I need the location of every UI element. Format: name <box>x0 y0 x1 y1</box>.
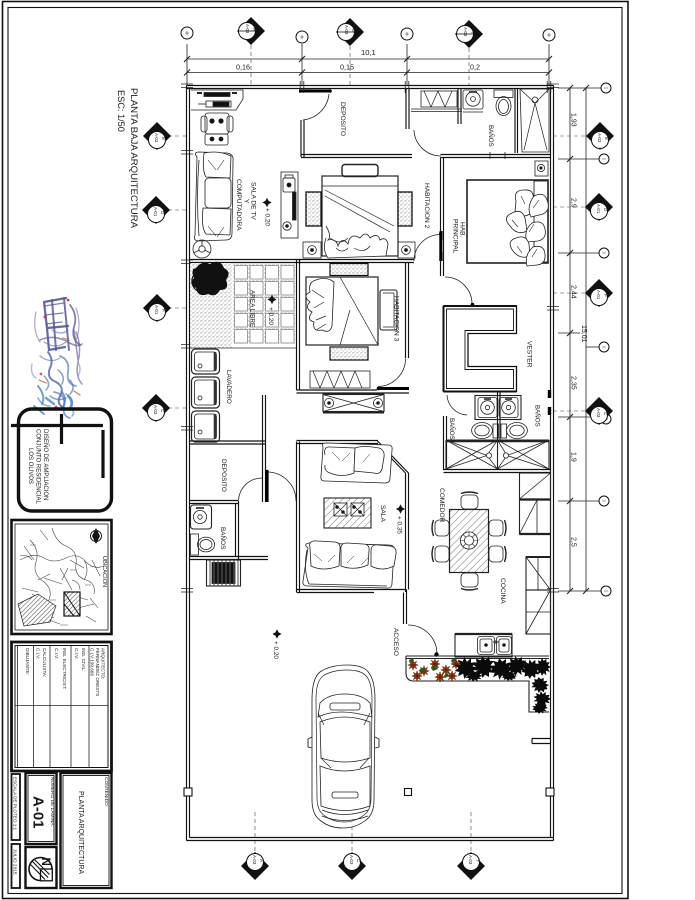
svg-text:A-03: A-03 <box>154 133 159 143</box>
svg-text:F: F <box>603 294 608 297</box>
svg-text:AREA LIBRE: AREA LIBRE <box>249 290 256 327</box>
svg-text:ARQUITECTO:: ARQUITECTO: <box>101 648 106 679</box>
svg-text:ESCALA DE PLOTEO 1:1: ESCALA DE PLOTEO 1:1 <box>13 777 18 831</box>
svg-text:C.I.V:: C.I.V: <box>36 648 41 659</box>
svg-text:ING. CIVIL:: ING. CIVIL: <box>81 648 86 672</box>
svg-text:N: N <box>39 858 51 866</box>
svg-text:15,01: 15,01 <box>580 325 587 343</box>
svg-text:1,9: 1,9 <box>570 452 577 462</box>
svg-text:T: T <box>475 859 480 862</box>
svg-text:ACCESO: ACCESO <box>392 628 399 656</box>
svg-text:0,2: 0,2 <box>470 63 480 72</box>
svg-text:PRINCIPAL: PRINCIPAL <box>452 219 459 254</box>
svg-text:CONJUNTO RESIDENCIAL: CONJUNTO RESIDENCIAL <box>35 429 41 505</box>
svg-text:ING. ELECTRICIST:: ING. ELECTRICIST: <box>62 648 67 689</box>
svg-text:+ 0,20: + 0,20 <box>272 641 279 659</box>
svg-text:VESTER: VESTER <box>526 341 533 368</box>
svg-text:A-03: A-03 <box>245 24 250 34</box>
svg-text:A-03: A-03 <box>252 855 257 865</box>
svg-text:BAÑOS: BAÑOS <box>448 418 455 440</box>
svg-text:LAVADERO: LAVADERO <box>225 370 232 404</box>
svg-text:DISEÑO DE AMPLIACION: DISEÑO DE AMPLIACION <box>42 429 49 500</box>
svg-text:A-03: A-03 <box>463 27 468 37</box>
svg-text:A-01: A-01 <box>153 207 158 217</box>
svg-text:DEPOSITO: DEPOSITO <box>339 102 346 136</box>
svg-text:+ 0,35: + 0,35 <box>396 516 403 534</box>
svg-text:C.I.V:: C.I.V: <box>54 648 59 659</box>
svg-text:BAÑOS: BAÑOS <box>487 125 494 147</box>
svg-text:LOS OLIVOS: LOS OLIVOS <box>27 448 33 484</box>
svg-text:COCINA: COCINA <box>499 578 506 604</box>
svg-text:ESC: 1/50: ESC: 1/50 <box>116 90 126 132</box>
svg-text:NUMERO DE LAMINA:: NUMERO DE LAMINA: <box>49 777 55 827</box>
svg-text:SALA: SALA <box>379 505 386 522</box>
svg-text:Y: Y <box>243 199 250 204</box>
svg-text:HABITACION 2: HABITACION 2 <box>423 183 430 229</box>
svg-text:A-03: A-03 <box>153 405 158 415</box>
svg-text:A-03: A-03 <box>468 855 473 865</box>
svg-text:C.I.V:: C.I.V: <box>74 648 79 659</box>
svg-text:2,5: 2,5 <box>570 537 577 547</box>
svg-text:E: E <box>161 137 166 140</box>
svg-text:E: E <box>604 137 609 140</box>
svg-text:FERNANDEZ ORESTS: FERNANDEZ ORESTS <box>95 648 100 696</box>
svg-text:DIBUJANTE:: DIBUJANTE: <box>25 648 30 675</box>
svg-text:C.I.V:199,666: C.I.V:199,666 <box>90 648 95 676</box>
svg-text:A-01: A-01 <box>596 204 601 214</box>
svg-text:0,16: 0,16 <box>236 63 250 72</box>
svg-text:A-03: A-03 <box>344 25 349 35</box>
svg-text:COMEDOR: COMEDOR <box>438 488 445 523</box>
svg-text:10,1: 10,1 <box>361 48 376 57</box>
svg-text:A-03: A-03 <box>596 408 601 418</box>
svg-text:SALA DE TV: SALA DE TV <box>250 182 257 220</box>
svg-text:JULIO 2015: JULIO 2015 <box>12 849 18 875</box>
svg-text:2,9: 2,9 <box>570 198 577 208</box>
svg-text:PLANTA BAJA ARQUITECTURA: PLANTA BAJA ARQUITECTURA <box>128 88 139 229</box>
svg-text:BAÑOS: BAÑOS <box>219 527 228 549</box>
svg-text:HABITACION 3: HABITACION 3 <box>393 296 400 342</box>
svg-text:A-01: A-01 <box>154 305 159 315</box>
svg-text:T: T <box>470 31 475 34</box>
svg-text:2,44: 2,44 <box>570 285 577 299</box>
svg-text:PLANTA ARQUITECTURA: PLANTA ARQUITECTURA <box>77 791 84 874</box>
svg-text:A-03: A-03 <box>349 855 354 865</box>
svg-text:0,15: 0,15 <box>340 63 354 72</box>
svg-text:DEPOSITO: DEPOSITO <box>220 459 227 492</box>
svg-text:COMPUTADORA: COMPUTADORA <box>235 179 242 231</box>
svg-text:UBICACION: UBICACION <box>101 556 107 587</box>
svg-text:A-03: A-03 <box>597 133 602 143</box>
svg-text:BAÑOS: BAÑOS <box>534 405 541 427</box>
svg-text:+ 0,20: + 0,20 <box>267 307 274 325</box>
svg-text:1,93: 1,93 <box>570 113 577 127</box>
svg-text:A-01: A-01 <box>596 290 601 300</box>
svg-text:F: F <box>161 309 166 312</box>
svg-text:HAB.: HAB. <box>459 222 466 238</box>
svg-text:CALCULISTA:: CALCULISTA: <box>42 648 47 677</box>
svg-text:A-01: A-01 <box>30 796 47 829</box>
svg-text:CONTENIDO:: CONTENIDO: <box>103 777 109 807</box>
svg-text:2,35: 2,35 <box>570 376 577 390</box>
svg-text:+ 0,20: + 0,20 <box>264 208 271 226</box>
